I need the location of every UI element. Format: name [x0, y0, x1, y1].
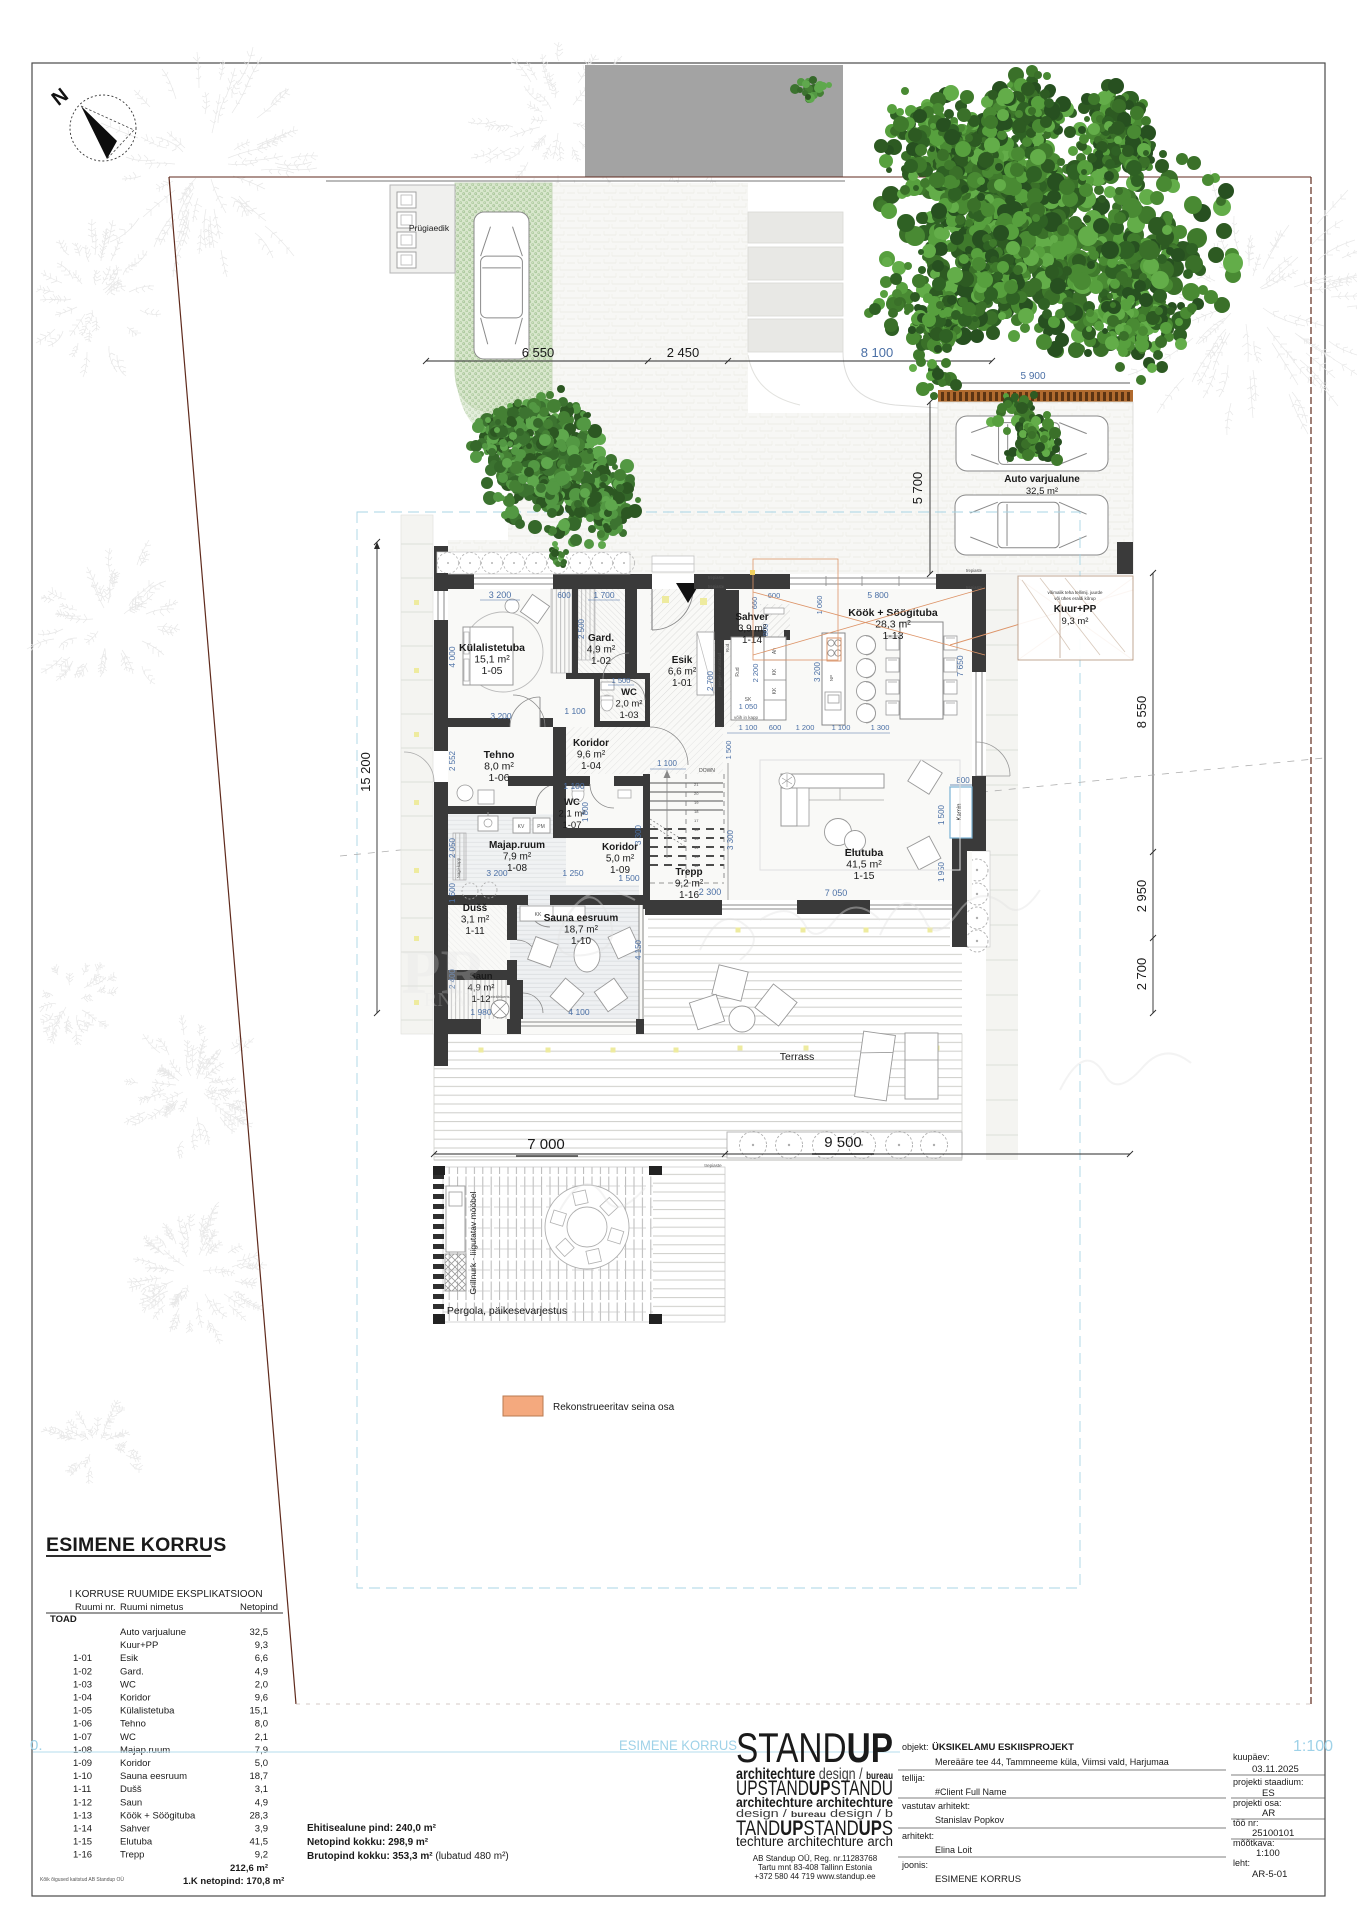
svg-text:1-06: 1-06	[488, 772, 509, 784]
svg-text:1-10: 1-10	[571, 936, 591, 947]
svg-text:2 050: 2 050	[448, 837, 457, 858]
svg-text:1 100: 1 100	[564, 706, 586, 716]
svg-text:8 550: 8 550	[1134, 696, 1149, 729]
svg-text:15: 15	[694, 836, 699, 841]
svg-text:Dušš: Dušš	[463, 903, 488, 914]
svg-text:1-07: 1-07	[562, 820, 581, 831]
svg-text:17: 17	[694, 818, 699, 823]
svg-text:või ühes eraldi kõrup: või ühes eraldi kõrup	[1054, 596, 1096, 601]
svg-text:1 800: 1 800	[581, 801, 590, 822]
svg-text:1 500: 1 500	[937, 804, 946, 825]
svg-text:7 650: 7 650	[955, 655, 965, 677]
svg-text:5,0 m²: 5,0 m²	[606, 854, 635, 865]
svg-text:Prügiaedik: Prügiaedik	[409, 223, 450, 233]
svg-text:Gard.: Gard.	[588, 633, 614, 644]
svg-text:600: 600	[769, 723, 782, 732]
svg-text:3 200: 3 200	[486, 868, 508, 878]
svg-text:Rekonstrueeritav seina osa: Rekonstrueeritav seina osa	[553, 1402, 675, 1413]
svg-text:7,9 m²: 7,9 m²	[503, 852, 532, 863]
svg-text:Köök + Söögituba: Köök + Söögituba	[848, 607, 938, 619]
svg-text:Koridor: Koridor	[602, 842, 638, 853]
svg-text:1 100: 1 100	[657, 759, 678, 768]
svg-text:PM: PM	[537, 824, 545, 830]
svg-text:4 150: 4 150	[634, 939, 643, 960]
svg-text:NP: NP	[829, 675, 834, 681]
svg-text:trepiaste: trepiaste	[708, 575, 725, 580]
svg-text:Majap.ruum: Majap.ruum	[489, 840, 545, 851]
svg-text:võih in kapp: võih in kapp	[734, 715, 759, 720]
svg-text:Esik: Esik	[672, 655, 693, 666]
svg-text:4 000: 4 000	[447, 646, 457, 668]
svg-text:Grillnurk - liigutatav mööbel: Grillnurk - liigutatav mööbel	[468, 1191, 478, 1294]
svg-text:Elutuba: Elutuba	[845, 847, 884, 859]
svg-text:1-08: 1-08	[507, 863, 527, 874]
svg-text:600: 600	[557, 591, 571, 600]
svg-text:5 700: 5 700	[910, 472, 925, 505]
svg-text:3 200: 3 200	[490, 711, 512, 721]
svg-text:3,9 m²: 3,9 m²	[738, 624, 767, 635]
svg-text:9,6 m²: 9,6 m²	[577, 750, 606, 761]
svg-text:3 200: 3 200	[813, 661, 822, 682]
svg-text:5 800: 5 800	[867, 590, 889, 600]
svg-text:15,1 m²: 15,1 m²	[474, 654, 510, 666]
svg-text:2 700: 2 700	[706, 670, 715, 691]
svg-text:18: 18	[694, 809, 699, 814]
svg-text:2,0 m²: 2,0 m²	[616, 699, 643, 710]
svg-text:Rud: Rud	[735, 667, 741, 676]
svg-text:1-15: 1-15	[853, 870, 874, 882]
svg-text:1-01: 1-01	[672, 678, 692, 689]
svg-text:32,5 m²: 32,5 m²	[1026, 486, 1058, 497]
svg-text:3 200: 3 200	[489, 590, 512, 600]
svg-text:1 050: 1 050	[739, 702, 758, 711]
svg-text:DOWN: DOWN	[699, 768, 715, 774]
svg-text:6 550: 6 550	[522, 345, 555, 360]
svg-text:1-05: 1-05	[481, 665, 502, 677]
svg-text:8,0 m²: 8,0 m²	[484, 761, 514, 773]
svg-text:Trepp: Trepp	[675, 867, 702, 878]
svg-text:28,3 m²: 28,3 m²	[875, 619, 911, 631]
svg-text:1 950: 1 950	[937, 861, 946, 882]
svg-text:7 050: 7 050	[825, 888, 848, 898]
svg-text:1 500: 1 500	[724, 741, 733, 760]
svg-text:3,1 m²: 3,1 m²	[461, 915, 490, 926]
svg-text:2 500: 2 500	[577, 618, 586, 639]
svg-text:1 300: 1 300	[871, 723, 890, 732]
svg-text:1 700: 1 700	[593, 590, 615, 600]
svg-text:15 200: 15 200	[358, 752, 373, 792]
svg-text:1-02: 1-02	[591, 656, 611, 667]
svg-text:1-16: 1-16	[679, 890, 699, 901]
svg-text:1 060: 1 060	[815, 596, 824, 615]
svg-text:KK: KK	[772, 668, 778, 675]
svg-text:660: 660	[750, 597, 759, 610]
svg-text:trepiaste: trepiaste	[704, 1163, 722, 1168]
svg-text:2 700: 2 700	[1134, 958, 1149, 991]
svg-text:2 950: 2 950	[1134, 880, 1149, 913]
svg-text:6,6 m²: 6,6 m²	[668, 667, 697, 678]
svg-text:2 200: 2 200	[751, 664, 760, 683]
svg-text:WC: WC	[621, 687, 637, 698]
svg-text:1-03: 1-03	[619, 710, 638, 721]
svg-text:Auto varjualune: Auto varjualune	[1004, 474, 1080, 485]
svg-text:Külalistetuba: Külalistetuba	[459, 642, 525, 654]
svg-text:KK: KK	[535, 912, 542, 918]
svg-text:1 100: 1 100	[563, 781, 585, 791]
svg-text:võimalik teha tellimij. juurde: võimalik teha tellimij. juurde	[1047, 590, 1103, 595]
svg-text:3 300: 3 300	[726, 829, 735, 850]
svg-text:1 500: 1 500	[612, 676, 631, 685]
svg-text:41,5 m²: 41,5 m²	[846, 859, 882, 871]
svg-text:9,3 m²: 9,3 m²	[1062, 616, 1089, 627]
svg-text:19: 19	[694, 800, 699, 805]
svg-text:16: 16	[694, 827, 699, 832]
svg-text:trepiaste: trepiaste	[708, 584, 725, 589]
svg-text:1 600: 1 600	[448, 882, 457, 903]
svg-text:1 100: 1 100	[739, 723, 758, 732]
svg-text:Tehno: Tehno	[484, 749, 515, 761]
svg-text:20: 20	[694, 791, 699, 796]
svg-text:Nagi+kapp: Nagi+kapp	[456, 857, 461, 878]
svg-text:13: 13	[694, 854, 699, 859]
svg-text:Koridor: Koridor	[573, 738, 609, 749]
svg-text:WC: WC	[564, 797, 580, 808]
svg-text:KK: KK	[772, 687, 778, 694]
svg-text:21: 21	[694, 782, 699, 787]
svg-text:5 900: 5 900	[1020, 371, 1045, 382]
svg-text:1-04: 1-04	[581, 761, 601, 772]
svg-text:Sahver: Sahver	[735, 612, 768, 623]
svg-text:8 100: 8 100	[861, 345, 894, 360]
svg-text:1 250: 1 250	[562, 868, 584, 878]
svg-text:2 552: 2 552	[448, 750, 457, 771]
svg-text:14: 14	[694, 845, 699, 850]
svg-text:1 100: 1 100	[832, 723, 851, 732]
svg-text:9,2 m²: 9,2 m²	[675, 879, 704, 890]
svg-text:trepiaste: trepiaste	[966, 568, 983, 573]
svg-text:1-14: 1-14	[742, 635, 762, 646]
svg-text:Rud: Rud	[725, 643, 730, 652]
svg-text:18,7 m²: 18,7 m²	[564, 925, 599, 936]
svg-text:9 500: 9 500	[824, 1134, 862, 1151]
svg-text:Pergola, päikesevarjestus: Pergola, päikesevarjestus	[447, 1305, 567, 1317]
svg-text:Kuur+PP: Kuur+PP	[1054, 604, 1097, 615]
svg-text:7 000: 7 000	[527, 1136, 565, 1153]
svg-text:800: 800	[956, 776, 970, 785]
svg-text:4 100: 4 100	[568, 1007, 590, 1017]
svg-text:KV: KV	[518, 824, 525, 830]
svg-text:4,9 m²: 4,9 m²	[587, 645, 616, 656]
svg-text:elektrikeris: elektrikeris	[490, 994, 509, 999]
svg-text:1 500: 1 500	[618, 873, 640, 883]
svg-text:peegel+varustatud: peegel+varustatud	[717, 652, 722, 687]
svg-text:Terrass: Terrass	[780, 1051, 814, 1063]
svg-text:2 450: 2 450	[667, 345, 700, 360]
svg-text:1 200: 1 200	[796, 723, 815, 732]
